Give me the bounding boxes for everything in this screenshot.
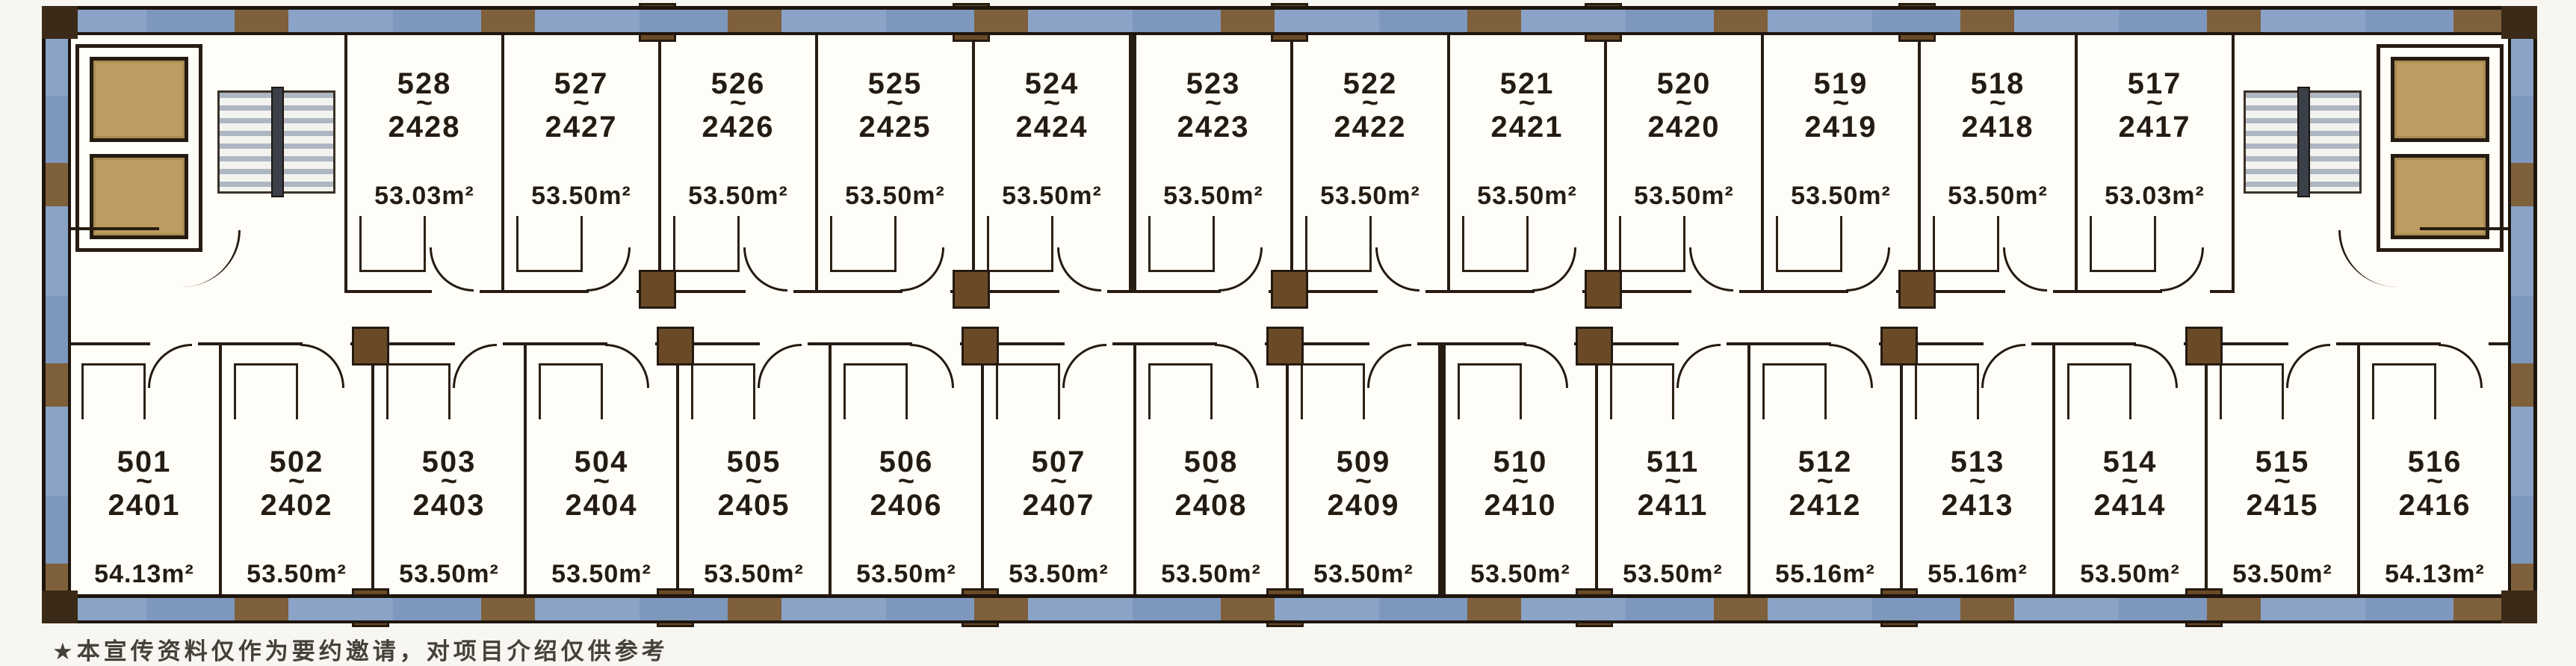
room-label: 522 ~ 2422 53.50m² xyxy=(1293,35,1447,218)
room-area: 53.50m² xyxy=(1634,182,1734,211)
room-vestibule xyxy=(374,345,524,418)
room-cell: 515 ~ 2415 53.50m² xyxy=(2208,342,2360,595)
room-cell: 516 ~ 2416 54.13m² xyxy=(2360,342,2510,595)
range-tilde: ~ xyxy=(898,478,914,490)
bathroom-partition xyxy=(1610,363,1674,419)
room-label: 505 ~ 2405 53.50m² xyxy=(679,418,829,595)
room-label: 516 ~ 2416 54.13m² xyxy=(2360,418,2510,595)
bathroom-partition xyxy=(830,216,896,272)
lobby-wall xyxy=(69,227,159,230)
door-swing-icon xyxy=(758,344,802,388)
door-swing-icon xyxy=(1676,344,1721,388)
room-area-value: 53.50 xyxy=(1470,560,1538,588)
range-tilde: ~ xyxy=(1817,478,1833,490)
room-area-unit: m² xyxy=(2300,560,2332,588)
door-swing-icon xyxy=(1375,247,1419,292)
room-vestibule xyxy=(975,218,1129,290)
alt-room-number: 2408 xyxy=(1175,490,1248,521)
door-swing-icon xyxy=(1981,344,2025,388)
room-cell: 521 ~ 2421 53.50m² xyxy=(1450,35,1607,293)
room-label: 509 ~ 2409 53.50m² xyxy=(1289,418,1438,595)
bathroom-partition xyxy=(539,363,603,419)
room-vestibule xyxy=(527,345,676,418)
room-area-unit: m² xyxy=(1076,560,1109,588)
bathroom-partition xyxy=(386,363,451,419)
room-area: 53.50m² xyxy=(1320,182,1420,211)
range-tilde: ~ xyxy=(2122,478,2138,490)
elevator-icon xyxy=(90,154,188,239)
room-area-unit: m² xyxy=(619,560,651,588)
room-label: 517 ~ 2417 53.03m² xyxy=(2078,35,2232,218)
room-vestibule xyxy=(2078,218,2232,290)
door-swing-icon xyxy=(182,230,241,287)
room-area: 53.50m² xyxy=(1791,182,1891,211)
room-area: 53.50m² xyxy=(1002,182,1102,211)
room-area-value: 53.03 xyxy=(374,182,442,210)
room-vestibule xyxy=(222,345,371,418)
room-vestibule xyxy=(1289,345,1438,418)
room-area: 53.03m² xyxy=(2105,182,2205,211)
room-area: 54.13m² xyxy=(2385,560,2485,589)
bathroom-partition xyxy=(1619,216,1685,272)
room-area: 53.50m² xyxy=(1623,560,1723,589)
exterior-wall-band-left xyxy=(42,6,71,623)
room-area-unit: m² xyxy=(2015,182,2048,210)
room-cell: 518 ~ 2418 53.50m² xyxy=(1921,35,2078,293)
alt-room-number: 2414 xyxy=(2094,490,2167,521)
room-vestibule xyxy=(1136,218,1290,290)
room-area-unit: m² xyxy=(314,560,347,588)
room-label: 526 ~ 2426 53.50m² xyxy=(661,35,815,218)
room-area-unit: m² xyxy=(2147,560,2180,588)
bathroom-partition xyxy=(2372,363,2436,419)
room-cell: 524 ~ 2424 53.50m² xyxy=(975,35,1136,293)
room-area: 53.03m² xyxy=(374,182,474,211)
room-label: 527 ~ 2427 53.50m² xyxy=(504,35,658,218)
room-cell: 510 ~ 2410 53.50m² xyxy=(1446,342,1598,595)
door-swing-icon xyxy=(2439,344,2483,388)
room-area-unit: m² xyxy=(1538,560,1570,588)
room-vestibule xyxy=(2055,345,2205,418)
door-swing-icon xyxy=(300,344,344,388)
room-area-unit: m² xyxy=(1995,560,2028,588)
room-area-value: 53.50 xyxy=(1313,560,1381,588)
room-label: 528 ~ 2428 53.03m² xyxy=(347,35,501,218)
range-tilde: ~ xyxy=(730,99,746,111)
alt-room-number: 2425 xyxy=(859,111,932,143)
room-area-unit: m² xyxy=(1858,182,1891,210)
room-vestibule xyxy=(1446,345,1595,418)
door-swing-icon xyxy=(453,344,497,388)
range-tilde: ~ xyxy=(1355,478,1372,490)
room-area-value: 53.50 xyxy=(2232,560,2300,588)
lobby-wall xyxy=(2420,227,2510,230)
room-area-value: 53.50 xyxy=(1634,182,1701,210)
door-swing-icon xyxy=(1219,247,1263,292)
room-vestibule xyxy=(1750,345,1900,418)
room-area-value: 53.03 xyxy=(2105,182,2172,210)
alt-room-number: 2423 xyxy=(1177,111,1250,143)
range-tilde: ~ xyxy=(573,99,589,111)
room-cell: 517 ~ 2417 53.03m² xyxy=(2078,35,2232,293)
room-area-value: 55.16 xyxy=(1775,560,1842,588)
room-vestibule xyxy=(1764,218,1918,290)
room-area-unit: m² xyxy=(598,182,631,210)
alt-room-number: 2422 xyxy=(1334,111,1407,143)
range-tilde: ~ xyxy=(1512,478,1529,490)
room-vestibule xyxy=(832,345,981,418)
lower-zone: 501 ~ 2401 54.13m² 502 ~ 2402 53.50m² 50… xyxy=(69,342,2510,595)
door-swing-icon xyxy=(2338,230,2397,287)
room-cell: 527 ~ 2427 53.50m² xyxy=(504,35,661,293)
bathroom-partition xyxy=(2220,363,2284,419)
door-swing-icon xyxy=(605,344,649,388)
room-vestibule xyxy=(2360,345,2510,418)
room-label: 523 ~ 2423 53.50m² xyxy=(1136,35,1290,218)
room-cell: 508 ~ 2408 53.50m² xyxy=(1136,342,1289,595)
room-area-unit: m² xyxy=(442,182,474,210)
room-area-value: 53.50 xyxy=(688,182,755,210)
exterior-wall-band-top xyxy=(42,6,2537,35)
range-tilde: ~ xyxy=(416,99,433,111)
room-label: 520 ~ 2420 53.50m² xyxy=(1607,35,1761,218)
room-area: 53.50m² xyxy=(247,560,347,589)
alt-room-number: 2401 xyxy=(108,490,181,521)
door-swing-icon xyxy=(1846,247,1890,292)
room-area-value: 53.50 xyxy=(1948,182,2015,210)
bathroom-partition xyxy=(2067,363,2131,419)
corner-column xyxy=(2501,591,2537,623)
range-tilde: ~ xyxy=(1362,99,1378,111)
alt-room-number: 2417 xyxy=(2119,111,2191,143)
bathroom-partition xyxy=(81,363,146,419)
room-area: 55.16m² xyxy=(1775,560,1875,589)
elevator-shaft xyxy=(75,44,202,252)
room-vestibule xyxy=(1921,218,2075,290)
room-vestibule xyxy=(69,345,219,418)
alt-room-number: 2428 xyxy=(388,111,461,143)
room-area-value: 54.13 xyxy=(94,560,161,588)
room-label: 518 ~ 2418 53.50m² xyxy=(1921,35,2075,218)
alt-room-number: 2405 xyxy=(718,490,790,521)
room-vestibule xyxy=(818,218,972,290)
bathroom-partition xyxy=(987,216,1053,272)
room-cell: 511 ~ 2411 53.50m² xyxy=(1598,342,1750,595)
room-label: 502 ~ 2402 53.50m² xyxy=(222,418,371,595)
door-swing-icon xyxy=(910,344,954,388)
door-swing-icon xyxy=(586,247,631,292)
alt-room-number: 2412 xyxy=(1789,490,1862,521)
bathroom-partition xyxy=(1305,216,1371,272)
room-area: 53.50m² xyxy=(1477,182,1577,211)
range-tilde: ~ xyxy=(2274,478,2291,490)
room-cell: 526 ~ 2426 53.50m² xyxy=(661,35,818,293)
range-tilde: ~ xyxy=(1833,99,1849,111)
room-cell: 509 ~ 2409 53.50m² xyxy=(1289,342,1446,595)
room-vestibule xyxy=(984,345,1133,418)
door-swing-icon xyxy=(1524,344,1568,388)
room-area-unit: m² xyxy=(771,560,804,588)
staircase-icon xyxy=(2244,90,2362,194)
exterior-wall-band-bottom xyxy=(42,594,2537,623)
room-cell: 528 ~ 2428 53.03m² xyxy=(347,35,504,293)
elevator-shaft xyxy=(2377,44,2504,252)
room-cell: 501 ~ 2401 54.13m² xyxy=(69,342,222,595)
range-tilde: ~ xyxy=(288,478,305,490)
plan-interior: 528 ~ 2428 53.03m² 527 ~ 2427 53.50m² 52… xyxy=(69,35,2510,595)
alt-room-number: 2426 xyxy=(702,111,775,143)
room-cell: 513 ~ 2413 55.16m² xyxy=(1903,342,2055,595)
room-vestibule xyxy=(1136,345,1286,418)
range-tilde: ~ xyxy=(1676,99,1692,111)
door-swing-icon xyxy=(148,344,192,388)
room-label: 504 ~ 2404 53.50m² xyxy=(527,418,676,595)
room-area-unit: m² xyxy=(1387,182,1420,210)
room-area-unit: m² xyxy=(2452,560,2485,588)
room-area: 53.50m² xyxy=(531,182,631,211)
alt-room-number: 2424 xyxy=(1016,111,1089,143)
corner-column xyxy=(42,6,78,39)
bathroom-partition xyxy=(843,363,908,419)
alt-room-number: 2410 xyxy=(1484,490,1557,521)
room-area-unit: m² xyxy=(1230,182,1263,210)
bathroom-partition xyxy=(691,363,755,419)
alt-room-number: 2407 xyxy=(1023,490,1095,521)
room-area-value: 53.50 xyxy=(1791,182,1858,210)
room-area-value: 53.50 xyxy=(1477,182,1544,210)
service-core-right xyxy=(2232,35,2510,293)
room-area: 53.50m² xyxy=(704,560,804,589)
bathroom-partition xyxy=(1458,363,1522,419)
alt-room-number: 2413 xyxy=(1942,490,2014,521)
room-area: 53.50m² xyxy=(551,560,651,589)
bathroom-partition xyxy=(1776,216,1842,272)
bathroom-partition xyxy=(1148,216,1214,272)
room-label: 519 ~ 2419 53.50m² xyxy=(1764,35,1918,218)
room-area-value: 53.50 xyxy=(2080,560,2147,588)
bathroom-partition xyxy=(359,216,425,272)
range-tilde: ~ xyxy=(887,99,903,111)
room-vestibule xyxy=(1450,218,1604,290)
room-area: 54.13m² xyxy=(94,560,194,589)
range-tilde: ~ xyxy=(441,478,457,490)
door-swing-icon xyxy=(2286,344,2330,388)
room-vestibule xyxy=(1293,218,1447,290)
room-area-unit: m² xyxy=(1701,182,1734,210)
room-label: 524 ~ 2424 53.50m² xyxy=(975,35,1129,218)
door-swing-icon xyxy=(1367,344,1411,388)
room-label: 507 ~ 2407 53.50m² xyxy=(984,418,1133,595)
room-label: 510 ~ 2410 53.50m² xyxy=(1446,418,1595,595)
door-swing-icon xyxy=(1215,344,1259,388)
room-vestibule xyxy=(1903,345,2052,418)
room-area-value: 53.50 xyxy=(1320,182,1387,210)
room-cell: 522 ~ 2422 53.50m² xyxy=(1293,35,1450,293)
door-swing-icon xyxy=(1532,247,1576,292)
bathroom-partition xyxy=(234,363,298,419)
range-tilde: ~ xyxy=(1990,99,2006,111)
service-core-left xyxy=(69,35,347,293)
elevator-icon xyxy=(2391,154,2489,239)
room-area: 53.50m² xyxy=(2080,560,2180,589)
room-vestibule xyxy=(504,218,658,290)
room-label: 511 ~ 2411 53.50m² xyxy=(1598,418,1747,595)
room-area-value: 54.13 xyxy=(2385,560,2452,588)
corner-column xyxy=(42,591,78,623)
room-area: 53.50m² xyxy=(1470,560,1570,589)
room-area-unit: m² xyxy=(1069,182,1102,210)
room-cell: 503 ~ 2403 53.50m² xyxy=(374,342,527,595)
room-area: 55.16m² xyxy=(1928,560,2028,589)
room-area-value: 53.50 xyxy=(704,560,771,588)
room-area-value: 53.50 xyxy=(1009,560,1076,588)
bathroom-partition xyxy=(996,363,1060,419)
range-tilde: ~ xyxy=(136,478,152,490)
room-area-value: 53.50 xyxy=(247,560,314,588)
alt-room-number: 2404 xyxy=(566,490,638,521)
room-area: 53.50m² xyxy=(1163,182,1263,211)
room-area-value: 53.50 xyxy=(551,560,619,588)
room-area-unit: m² xyxy=(1381,560,1414,588)
room-label: 512 ~ 2412 55.16m² xyxy=(1750,418,1900,595)
room-label: 513 ~ 2413 55.16m² xyxy=(1903,418,2052,595)
room-area: 53.50m² xyxy=(1161,560,1261,589)
room-label: 525 ~ 2425 53.50m² xyxy=(818,35,972,218)
room-area: 53.50m² xyxy=(856,560,956,589)
room-area-value: 53.50 xyxy=(845,182,912,210)
room-vestibule xyxy=(1598,345,1747,418)
room-area-value: 53.50 xyxy=(856,560,923,588)
room-area-unit: m² xyxy=(912,182,945,210)
room-area-unit: m² xyxy=(1842,560,1875,588)
room-area: 53.50m² xyxy=(845,182,945,211)
bathroom-partition xyxy=(1915,363,1979,419)
bathroom-partition xyxy=(2090,216,2155,272)
room-label: 508 ~ 2408 53.50m² xyxy=(1136,418,1286,595)
room-area-unit: m² xyxy=(755,182,788,210)
room-cell: 505 ~ 2405 53.50m² xyxy=(679,342,832,595)
room-area: 53.50m² xyxy=(1009,560,1109,589)
bathroom-partition xyxy=(1933,216,1998,272)
bathroom-partition xyxy=(516,216,582,272)
range-tilde: ~ xyxy=(1969,478,1986,490)
range-tilde: ~ xyxy=(2427,478,2443,490)
room-area: 53.50m² xyxy=(1948,182,2048,211)
room-area-value: 53.50 xyxy=(1002,182,1069,210)
alt-room-number: 2420 xyxy=(1648,111,1721,143)
door-swing-icon xyxy=(2160,247,2204,292)
room-area-value: 53.50 xyxy=(531,182,598,210)
room-vestibule xyxy=(1607,218,1761,290)
bathroom-partition xyxy=(673,216,739,272)
room-cell: 519 ~ 2419 53.50m² xyxy=(1764,35,1921,293)
floor-plan: 528 ~ 2428 53.03m² 527 ~ 2427 53.50m² 52… xyxy=(42,6,2537,623)
room-label: 514 ~ 2414 53.50m² xyxy=(2055,418,2205,595)
room-area-unit: m² xyxy=(2172,182,2205,210)
disclaimer-footnote: ★本宣传资料仅作为要约邀请，对项目介绍仅供参考 xyxy=(52,632,669,666)
room-label: 501 ~ 2401 54.13m² xyxy=(69,418,219,595)
alt-room-number: 2419 xyxy=(1805,111,1877,143)
range-tilde: ~ xyxy=(593,478,610,490)
range-tilde: ~ xyxy=(1044,99,1060,111)
room-cell: 507 ~ 2407 53.50m² xyxy=(984,342,1136,595)
top-room-row: 528 ~ 2428 53.03m² 527 ~ 2427 53.50m² 52… xyxy=(347,35,2232,293)
alt-room-number: 2402 xyxy=(261,490,333,521)
room-area: 53.50m² xyxy=(399,560,499,589)
room-area-value: 53.50 xyxy=(1623,560,1690,588)
alt-room-number: 2403 xyxy=(413,490,486,521)
room-area-value: 53.50 xyxy=(1161,560,1228,588)
room-cell: 523 ~ 2423 53.50m² xyxy=(1136,35,1293,293)
alt-room-number: 2418 xyxy=(1962,111,2034,143)
range-tilde: ~ xyxy=(1205,99,1222,111)
room-cell: 512 ~ 2412 55.16m² xyxy=(1750,342,1903,595)
upper-zone: 528 ~ 2428 53.03m² 527 ~ 2427 53.50m² 52… xyxy=(69,35,2510,293)
door-swing-icon xyxy=(1689,247,1733,292)
door-swing-icon xyxy=(743,247,787,292)
alt-room-number: 2415 xyxy=(2247,490,2319,521)
room-label: 521 ~ 2421 53.50m² xyxy=(1450,35,1604,218)
room-cell: 502 ~ 2402 53.50m² xyxy=(222,342,374,595)
room-cell: 525 ~ 2425 53.50m² xyxy=(818,35,975,293)
door-swing-icon xyxy=(2003,247,2047,292)
range-tilde: ~ xyxy=(1203,478,1219,490)
room-vestibule xyxy=(2208,345,2357,418)
room-area: 53.50m² xyxy=(688,182,788,211)
room-area-unit: m² xyxy=(1690,560,1723,588)
corner-column xyxy=(2501,6,2537,39)
room-label: 515 ~ 2415 53.50m² xyxy=(2208,418,2357,595)
bathroom-partition xyxy=(1462,216,1528,272)
bathroom-partition xyxy=(1762,363,1827,419)
alt-room-number: 2416 xyxy=(2399,490,2471,521)
room-area: 53.50m² xyxy=(1313,560,1414,589)
room-area-value: 53.50 xyxy=(1163,182,1230,210)
room-area-unit: m² xyxy=(1228,560,1261,588)
range-tilde: ~ xyxy=(2146,99,2163,111)
bathroom-partition xyxy=(1148,363,1213,419)
room-area-value: 53.50 xyxy=(399,560,466,588)
door-swing-icon xyxy=(2134,344,2178,388)
range-tilde: ~ xyxy=(1050,478,1067,490)
bathroom-partition xyxy=(1301,363,1365,419)
alt-room-number: 2421 xyxy=(1491,111,1564,143)
elevator-icon xyxy=(2391,57,2489,142)
door-swing-icon xyxy=(900,247,944,292)
range-tilde: ~ xyxy=(1519,99,1535,111)
door-swing-icon xyxy=(1057,247,1101,292)
room-area: 53.50m² xyxy=(2232,560,2332,589)
alt-room-number: 2427 xyxy=(545,111,618,143)
room-cell: 506 ~ 2406 53.50m² xyxy=(832,342,984,595)
range-tilde: ~ xyxy=(1665,478,1681,490)
door-swing-icon xyxy=(430,247,474,292)
room-area-unit: m² xyxy=(923,560,956,588)
room-vestibule xyxy=(661,218,815,290)
room-area-unit: m² xyxy=(466,560,499,588)
room-label: 506 ~ 2406 53.50m² xyxy=(832,418,981,595)
room-vestibule xyxy=(679,345,829,418)
alt-room-number: 2406 xyxy=(870,490,943,521)
room-label: 503 ~ 2403 53.50m² xyxy=(374,418,524,595)
room-cell: 514 ~ 2414 53.50m² xyxy=(2055,342,2208,595)
alt-room-number: 2411 xyxy=(1638,490,1709,521)
door-swing-icon xyxy=(1062,344,1106,388)
alt-room-number: 2409 xyxy=(1328,490,1400,521)
room-cell: 520 ~ 2420 53.50m² xyxy=(1607,35,1764,293)
room-area-unit: m² xyxy=(161,560,194,588)
room-cell: 504 ~ 2404 53.50m² xyxy=(527,342,679,595)
